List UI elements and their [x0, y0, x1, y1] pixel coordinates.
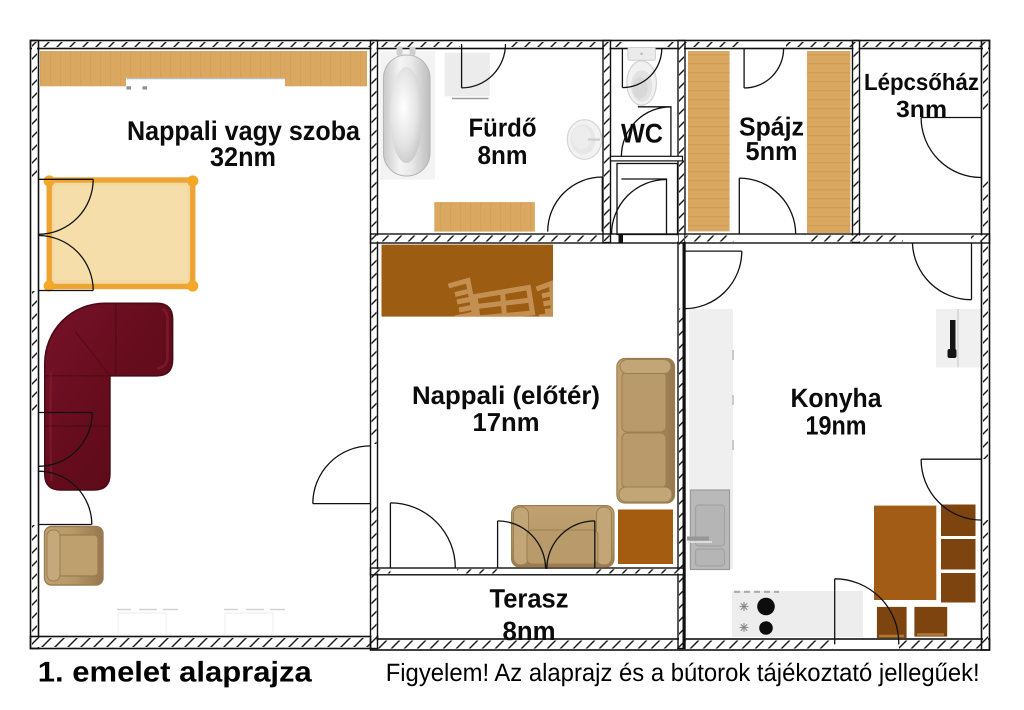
- svg-text:32nm: 32nm: [210, 142, 276, 172]
- svg-text:Figyelem! Az alaprajz és a bút: Figyelem! Az alaprajz és a bútorok tájék…: [386, 659, 980, 687]
- svg-text:17nm: 17nm: [473, 407, 540, 437]
- svg-text:Konyha: Konyha: [791, 383, 882, 413]
- svg-text:5nm: 5nm: [746, 136, 798, 166]
- svg-text:19nm: 19nm: [806, 411, 867, 441]
- svg-text:3nm: 3nm: [896, 96, 947, 122]
- svg-text:Fürdő: Fürdő: [469, 113, 537, 143]
- svg-text:Terasz: Terasz: [490, 584, 569, 614]
- svg-text:Nappali (előtér): Nappali (előtér): [412, 382, 600, 410]
- svg-text:8nm: 8nm: [503, 616, 556, 646]
- svg-text:8nm: 8nm: [478, 140, 528, 170]
- svg-text:Lépcsőház: Lépcsőház: [864, 69, 979, 95]
- svg-text:1. emelet alaprajza: 1. emelet alaprajza: [38, 657, 313, 689]
- svg-text:WC: WC: [621, 119, 663, 149]
